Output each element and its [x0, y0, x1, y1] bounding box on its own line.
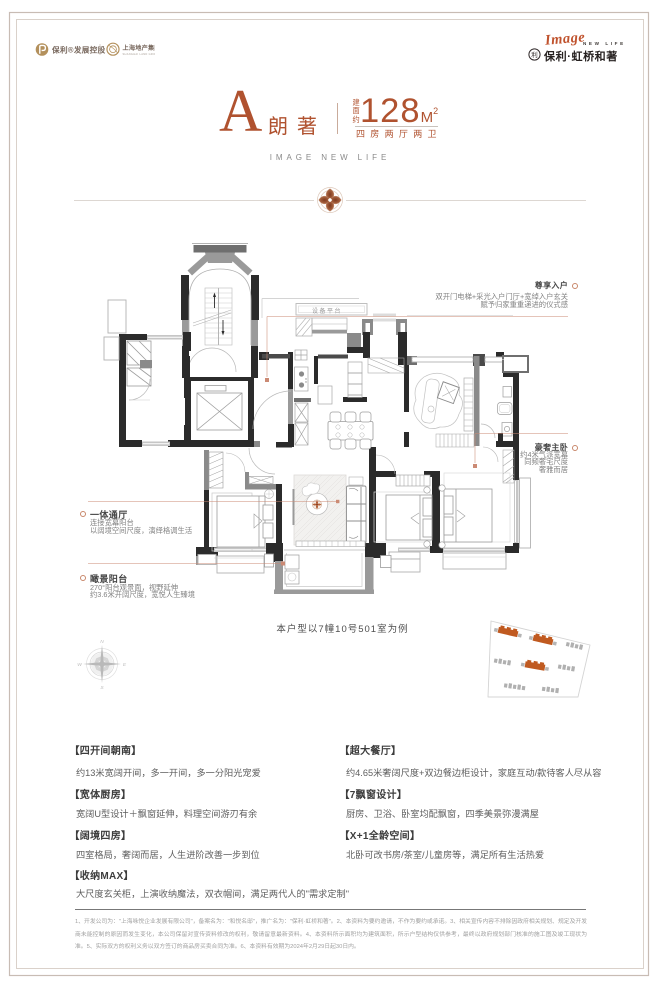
svg-text:E: E: [123, 662, 127, 668]
svg-text:N: N: [100, 639, 104, 645]
svg-text:S: S: [100, 685, 104, 691]
svg-text:W: W: [77, 662, 82, 668]
